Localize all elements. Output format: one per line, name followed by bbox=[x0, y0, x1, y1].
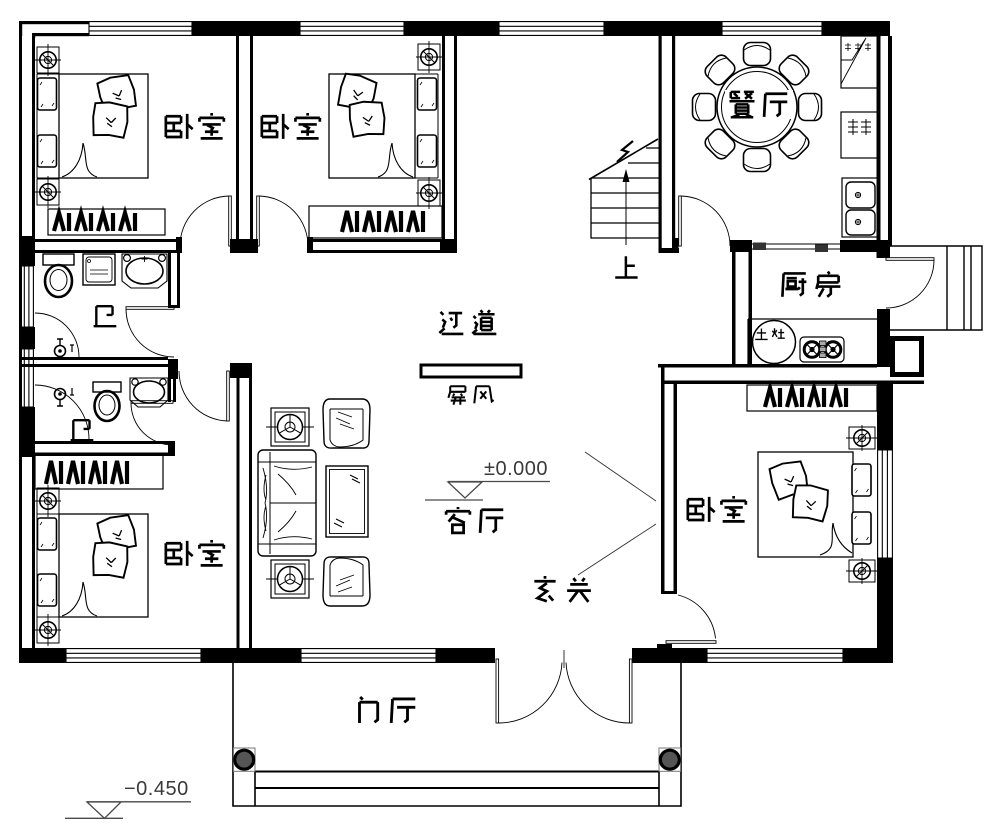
svg-text:−0.450: −0.450 bbox=[124, 778, 189, 800]
svg-text:±0.000: ±0.000 bbox=[484, 458, 548, 480]
